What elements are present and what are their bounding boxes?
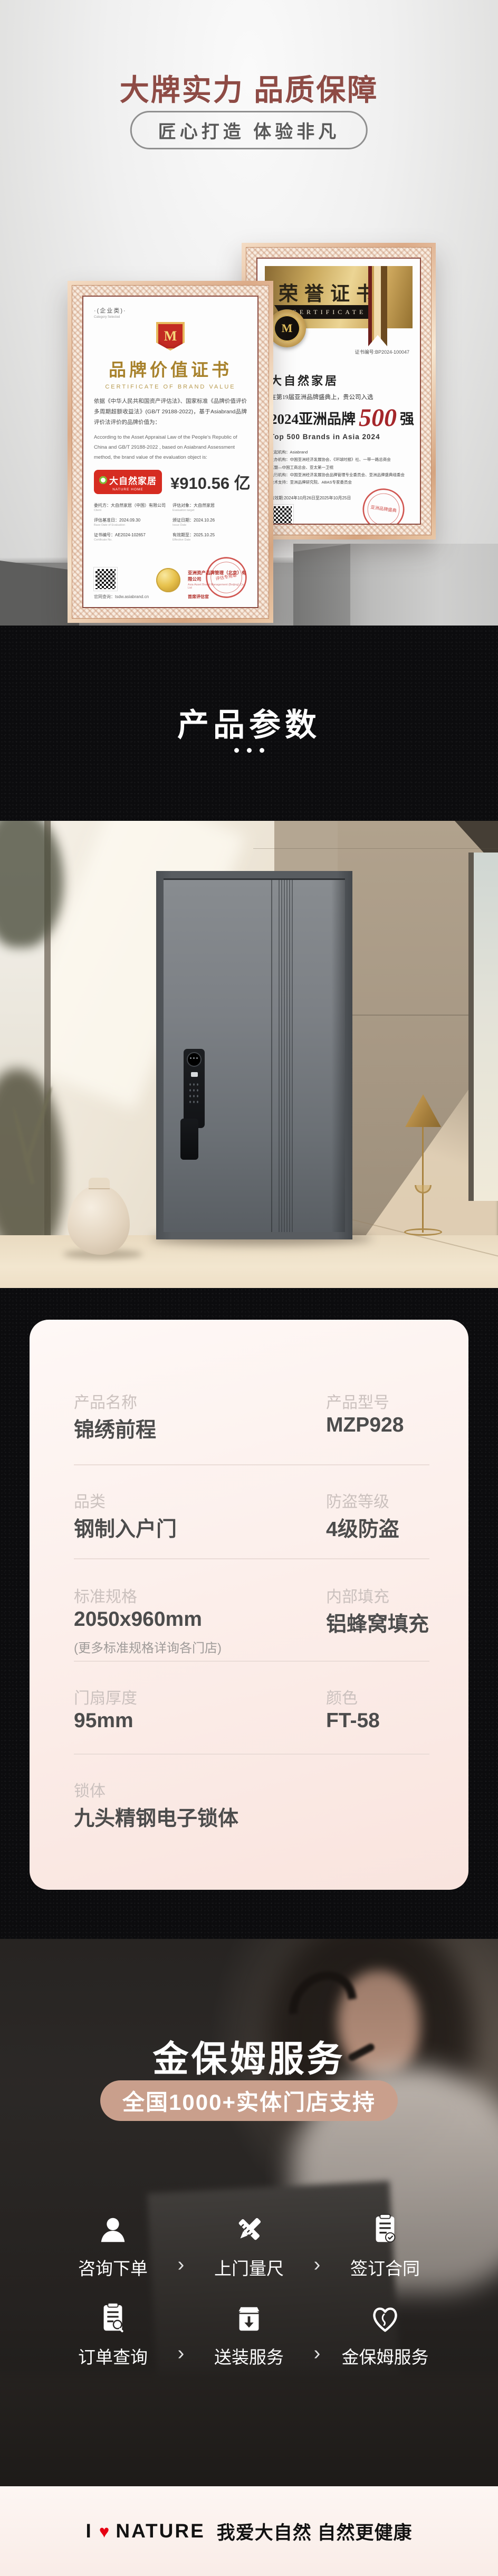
certificate-footer: 官网查询：tsdw.asiabrand.cn 亚洲资产品牌管理（北京）有限公司 … [94, 567, 247, 600]
hero-title: 大牌实力 品质保障 [0, 67, 498, 109]
fingerprint-pad [191, 1072, 198, 1077]
param-card: 产品名称 锦绣前程 产品型号 MZP928 品类 钢制入户门 防盗等级 4级防盗… [30, 1320, 468, 1890]
divider [74, 1558, 429, 1559]
params-title-band: 产品参数 [0, 626, 498, 821]
step-order-query: 订单查询 [56, 2302, 169, 2369]
service-title: 金保姆服务 [0, 2030, 498, 2082]
brand-value-row: 大自然家居 NATURE HOME ¥910.56 亿 [94, 470, 247, 494]
certificate-paper: ·(企业类)· Category Selected M 品牌价值证书 CERTI… [82, 296, 258, 608]
service-section: 金保姆服务 全国1000+实体门店支持 咨询下单 › [0, 1939, 498, 2486]
step-delivery-install: 送装服务 [193, 2302, 305, 2369]
chevron-right-icon: › [305, 2302, 329, 2363]
dots-decoration [0, 748, 498, 753]
param-value: 2050x960mm [74, 1608, 202, 1631]
vertical-ribbon-icon [368, 266, 387, 346]
param-value: 4级防盗 [326, 1513, 399, 1542]
door-scene-photo [0, 821, 498, 1288]
certificate-title: 品牌价值证书 [94, 356, 247, 381]
entry-door [156, 871, 352, 1239]
lock-handle [180, 1119, 198, 1160]
step-consult-order: 咨询下单 [56, 2213, 169, 2280]
chevron-right-icon: › [169, 2302, 193, 2363]
care-icon [369, 2302, 401, 2335]
hero-section: 大牌实力 品质保障 匠心打造 体验非凡 荣誉证书 CERTIFICATE M [0, 0, 498, 626]
logo-i: I [85, 2520, 92, 2542]
param-label: 产品型号 [326, 1389, 389, 1413]
organizer-lines: 发起机构：Asiabrand 主办机构：中国亚洲经济发展协会、《环球时报》社、一… [270, 449, 409, 486]
qr-code [94, 567, 117, 591]
gold-seal-icon [156, 568, 180, 592]
params-section-title: 产品参数 [0, 699, 498, 745]
param-label: 内部填充 [326, 1584, 389, 1607]
brand-value-certificate: ·(企业类)· Category Selected M 品牌价值证书 CERTI… [68, 281, 273, 623]
measure-icon [233, 2213, 265, 2246]
brand-value-amount: ¥910.56 亿 [170, 470, 251, 494]
param-value: 铝蜂窝填充 [326, 1608, 429, 1637]
red-stamp-icon: 亚洲品牌盛典 [360, 486, 407, 525]
pedestal-right [293, 544, 498, 626]
param-value: 钢制入户门 [74, 1513, 177, 1542]
divider [74, 1754, 429, 1755]
param-value: 九头精钢电子锁体 [74, 1802, 238, 1832]
certificate-ribbon-label: CERTIFICATE [292, 308, 367, 316]
param-value: FT-58 [326, 1709, 380, 1732]
heart-icon: ♥ [99, 2523, 110, 2540]
param-value: 锦绣前程 [74, 1414, 156, 1443]
brand-name: 大自然家居 [270, 372, 339, 389]
footer-tagline: 我爱大自然 自然更健康 [217, 2518, 413, 2545]
shield-emblem-icon: M [156, 322, 185, 351]
category-label: ·(企业类)· [94, 306, 247, 315]
param-note: (更多标准规格详询各门店) [74, 1637, 222, 1656]
param-label: 门扇厚度 [74, 1685, 137, 1708]
certificate-body-cn: 依据《中华人民共和国资产评估法》、国家标准《品牌价值评价多周期超额收益法》(GB… [94, 396, 247, 428]
award-line: 2024亚洲品牌 500 强 [270, 408, 414, 428]
medal-icon: M [268, 309, 306, 347]
door-leaf [164, 878, 345, 1232]
service-steps-row-2: 订单查询 › 送装服务 › 金保姆服务 [0, 2302, 498, 2369]
validity-line: 有效期:2024年10月26日至2025年10月25日 [270, 495, 351, 501]
step-measure: 上门量尺 [193, 2213, 305, 2280]
chevron-right-icon: › [305, 2213, 329, 2275]
param-label: 锁体 [74, 1778, 106, 1801]
right-window [468, 853, 498, 1201]
footer-logo-line: I ♥ NATURE 我爱大自然 自然更健康 [85, 2518, 412, 2545]
qr-code [270, 505, 293, 525]
award-intro: 在第19届亚洲品牌盛典上，贵公司入选 [270, 393, 373, 401]
param-value: MZP928 [326, 1414, 404, 1437]
product-detail-page: 大牌实力 品质保障 匠心打造 体验非凡 荣誉证书 CERTIFICATE M [0, 0, 498, 2576]
store-support-badge: 全国1000+实体门店支持 [100, 2080, 398, 2121]
step-gold-nanny-service: 金保姆服务 [329, 2302, 442, 2369]
user-icon [97, 2213, 129, 2246]
service-steps-row-1: 咨询下单 › 上门量尺 [0, 2213, 498, 2280]
certificate-paper: 荣誉证书 CERTIFICATE M 证书编号:BP2024-100047 大自… [256, 258, 421, 525]
param-value: 95mm [74, 1709, 133, 1732]
lock-camera-icon [188, 1053, 200, 1066]
smart-lock [184, 1049, 205, 1128]
certificate-number: 证书编号:BP2024-100047 [355, 348, 409, 355]
certificate-body-en: According to the Asset Appraisal Law of … [94, 432, 247, 462]
delivery-icon [233, 2302, 265, 2335]
param-label: 防盗等级 [326, 1489, 389, 1512]
logo-nature: NATURE [116, 2520, 205, 2542]
certificate-title-en: CERTIFICATE OF BRAND VALUE [94, 384, 247, 390]
website-query: 官网查询：tsdw.asiabrand.cn [94, 594, 149, 600]
footer: I ♥ NATURE 我爱大自然 自然更健康 [0, 2486, 498, 2576]
params-section: 产品名称 锦绣前程 产品型号 MZP928 品类 钢制入户门 防盗等级 4级防盗… [0, 1288, 498, 1939]
nature-home-logo: 大自然家居 NATURE HOME [94, 470, 162, 494]
logo-c-icon [99, 476, 107, 484]
contract-icon [369, 2213, 401, 2246]
order-search-icon [97, 2302, 129, 2335]
hero-subtitle-pill: 匠心打造 体验非凡 [130, 111, 368, 149]
keypad [188, 1082, 200, 1106]
param-label: 颜色 [326, 1685, 358, 1708]
certificate-fields: 委托方：大自然家居（中国）有限公司Client 评估对象：大自然家居Evalua… [94, 503, 247, 542]
divider [74, 1464, 429, 1465]
chevron-right-icon: › [169, 2213, 193, 2275]
param-label: 产品名称 [74, 1389, 137, 1413]
param-label: 标准规格 [74, 1584, 137, 1607]
honor-title: 荣誉证书 [279, 278, 382, 306]
step-sign-contract: 签订合同 [329, 2213, 442, 2280]
award-line-en: Top 500 Brands in Asia 2024 [270, 433, 380, 441]
divider [74, 1661, 429, 1662]
param-label: 品类 [74, 1489, 106, 1512]
